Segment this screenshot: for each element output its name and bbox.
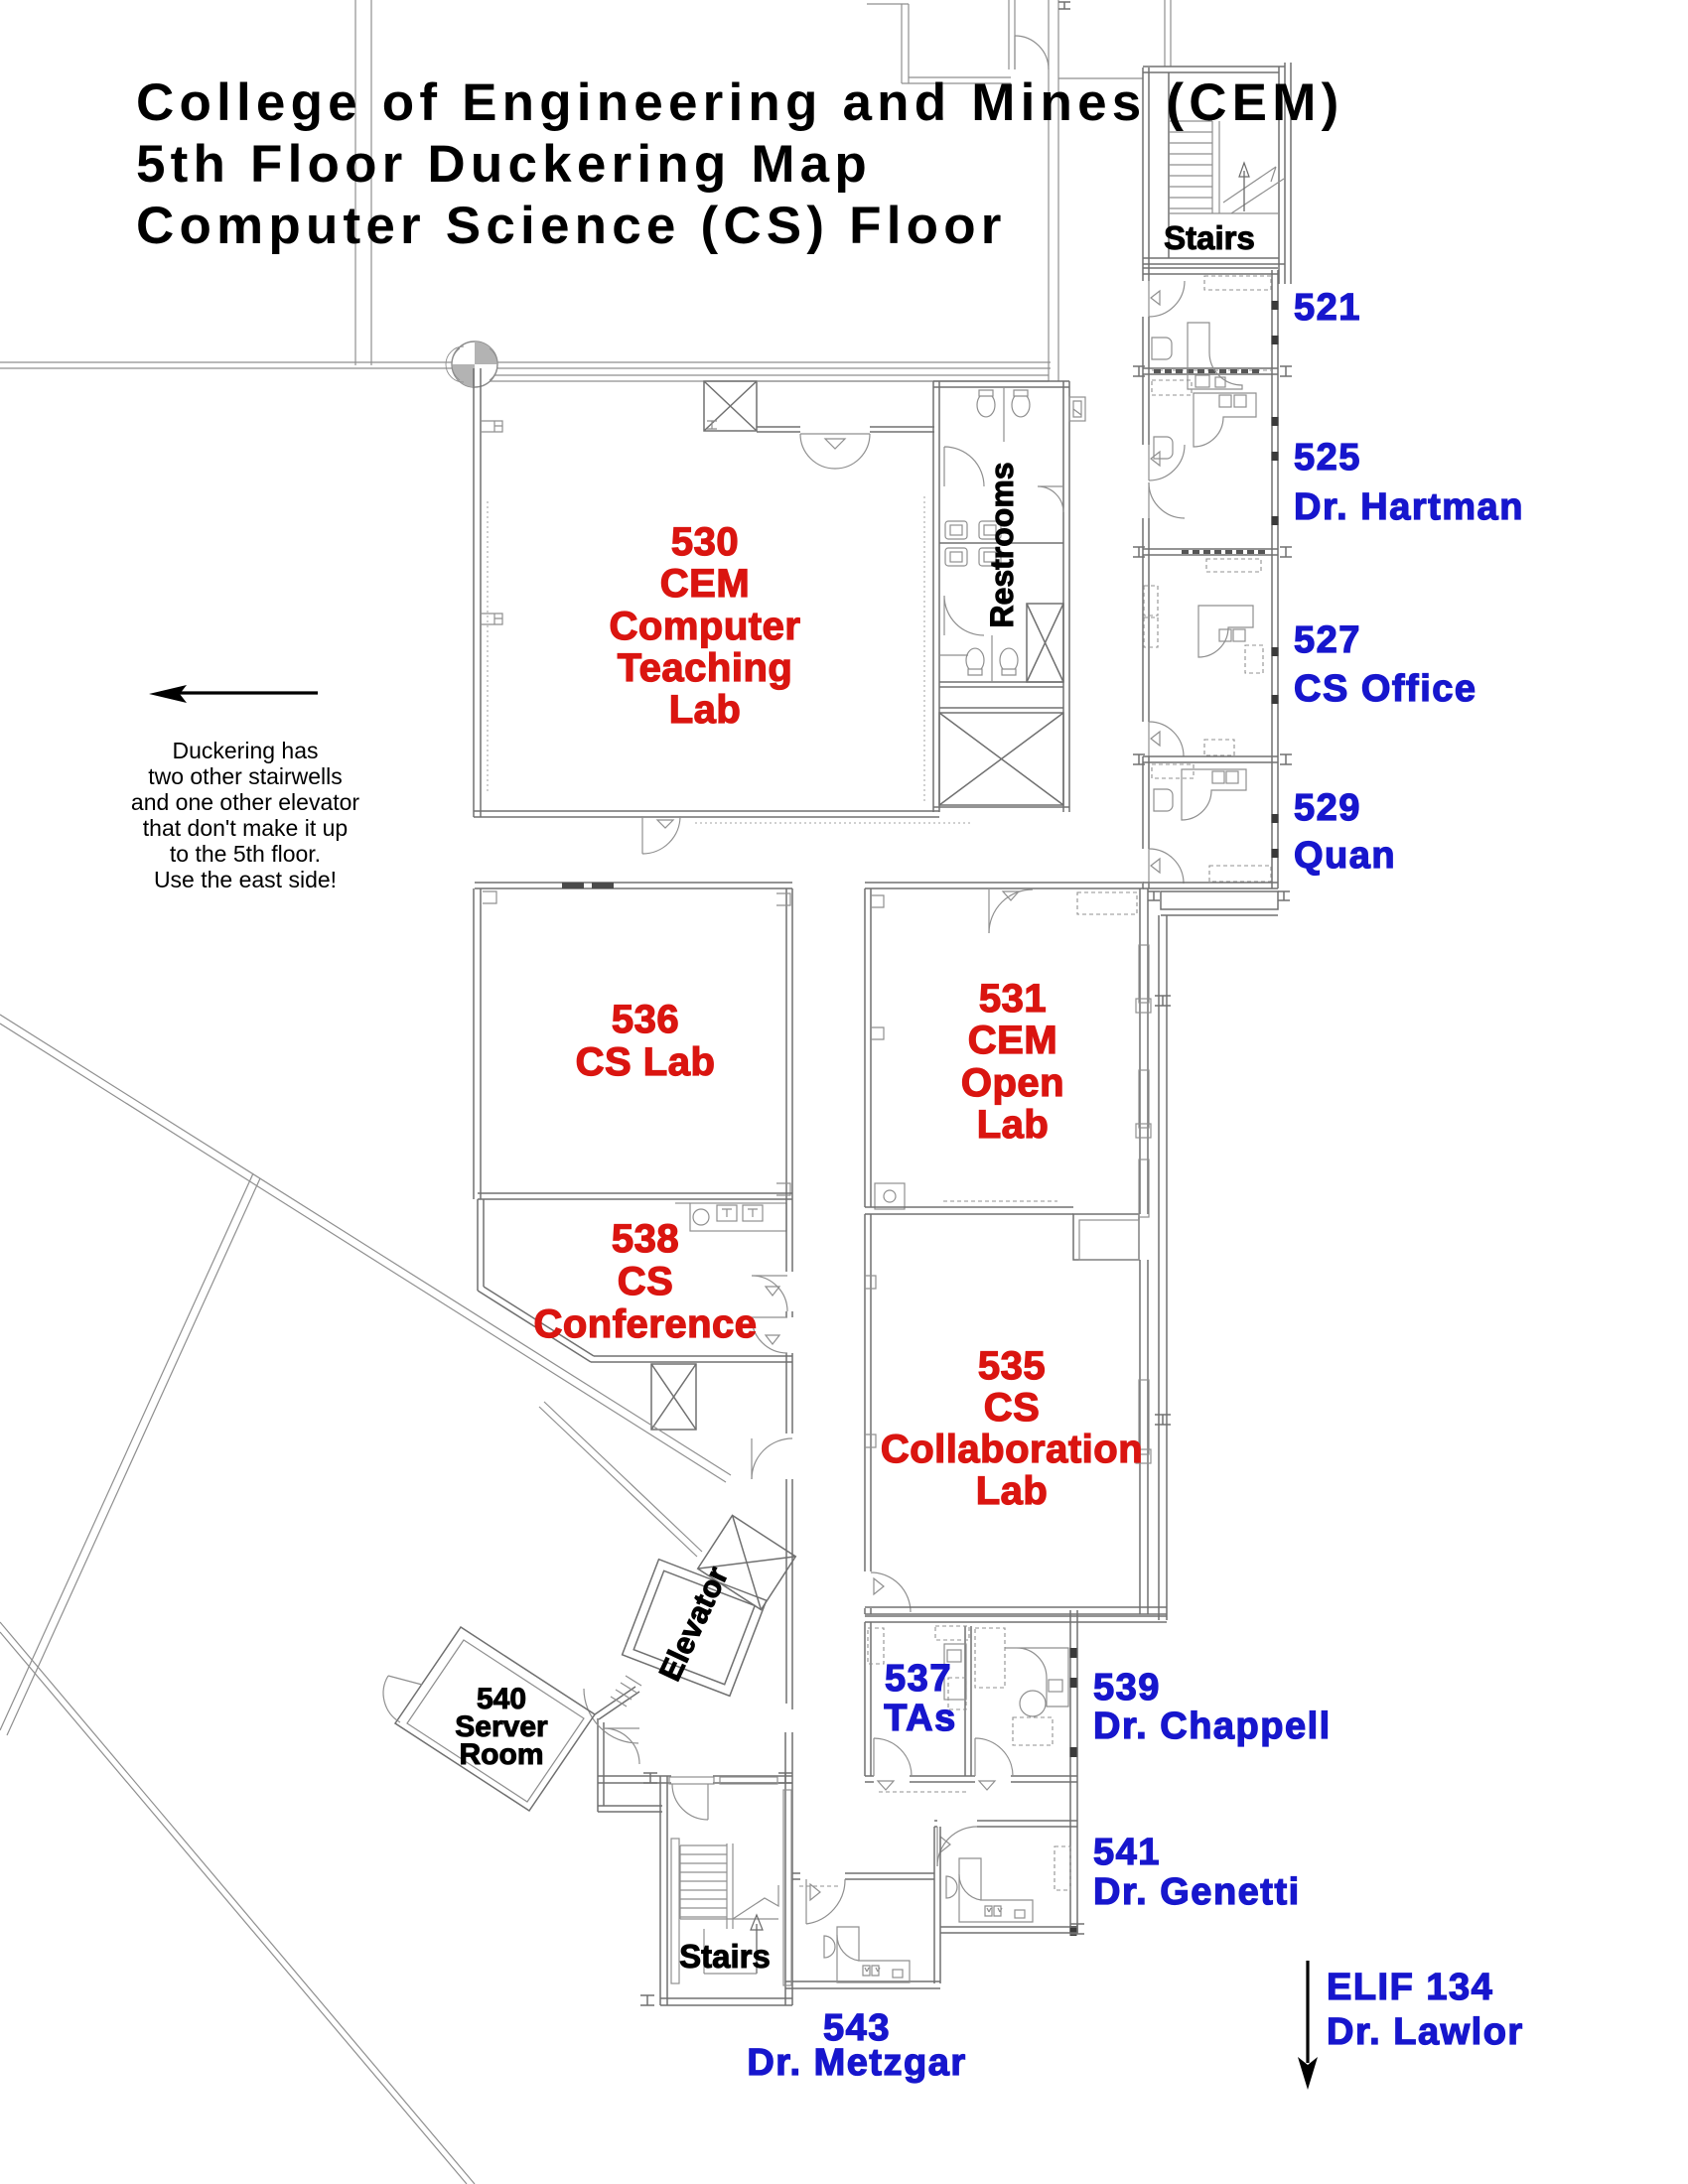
svg-text:Lab: Lab	[669, 688, 742, 732]
svg-text:541: 541	[1093, 1832, 1161, 1873]
svg-text:521: 521	[1294, 287, 1361, 329]
svg-text:CS Lab: CS Lab	[576, 1040, 716, 1084]
svg-text:CS: CS	[984, 1386, 1041, 1430]
svg-text:CS: CS	[618, 1260, 674, 1303]
svg-text:5th Floor Duckering Map: 5th Floor Duckering Map	[136, 135, 872, 194]
svg-text:Open: Open	[961, 1061, 1064, 1105]
svg-text:Dr. Lawlor: Dr. Lawlor	[1327, 2011, 1524, 2053]
svg-text:Room: Room	[460, 1738, 544, 1771]
svg-text:ELIF 134: ELIF 134	[1327, 1967, 1493, 2008]
svg-text:Lab: Lab	[977, 1103, 1050, 1147]
svg-text:College of Engineering and Min: College of Engineering and Mines (CEM)	[136, 73, 1343, 132]
svg-text:to the 5th floor.: to the 5th floor.	[170, 841, 321, 867]
svg-text:Quan: Quan	[1294, 835, 1396, 877]
svg-text:537: 537	[885, 1658, 952, 1700]
svg-text:Use the east side!: Use the east side!	[154, 867, 337, 892]
svg-text:538: 538	[612, 1217, 679, 1261]
svg-text:Stairs: Stairs	[1164, 219, 1255, 256]
svg-text:TAs: TAs	[884, 1698, 956, 1739]
svg-text:Stairs: Stairs	[679, 1938, 771, 1975]
svg-text:535: 535	[978, 1344, 1046, 1388]
svg-text:525: 525	[1294, 437, 1361, 478]
svg-text:CEM: CEM	[968, 1019, 1057, 1062]
svg-text:Dr. Hartman: Dr. Hartman	[1294, 486, 1524, 528]
svg-text:CEM: CEM	[660, 562, 750, 606]
svg-text:two other stairwells: two other stairwells	[148, 763, 343, 789]
svg-text:Conference: Conference	[533, 1302, 757, 1346]
svg-text:CS Office: CS Office	[1294, 668, 1477, 710]
svg-text:Lab: Lab	[976, 1469, 1049, 1513]
svg-text:and one other elevator: and one other elevator	[131, 789, 360, 815]
svg-text:Restrooms: Restrooms	[984, 462, 1020, 627]
svg-text:Dr. Metzgar: Dr. Metzgar	[747, 2042, 966, 2084]
svg-text:Computer Science (CS) Floor: Computer Science (CS) Floor	[136, 197, 1007, 255]
svg-text:527: 527	[1294, 619, 1361, 661]
svg-text:Duckering has: Duckering has	[172, 738, 318, 763]
svg-text:Dr. Genetti: Dr. Genetti	[1093, 1871, 1301, 1913]
svg-text:536: 536	[612, 998, 679, 1041]
svg-text:that don't make it up: that don't make it up	[143, 815, 348, 841]
svg-text:530: 530	[671, 520, 739, 564]
svg-text:Collaboration: Collaboration	[881, 1428, 1143, 1471]
svg-text:529: 529	[1294, 787, 1361, 829]
svg-text:539: 539	[1093, 1667, 1161, 1708]
svg-text:531: 531	[979, 977, 1047, 1021]
svg-text:Dr. Chappell: Dr. Chappell	[1093, 1706, 1332, 1747]
svg-text:Computer: Computer	[610, 605, 801, 648]
svg-text:Teaching: Teaching	[618, 646, 793, 690]
